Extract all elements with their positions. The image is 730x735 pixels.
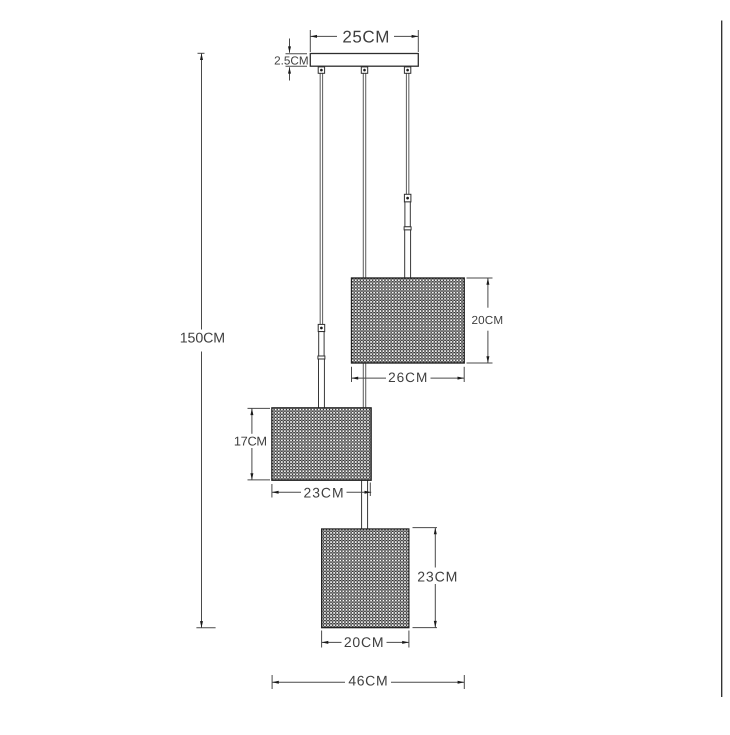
svg-text:20CM: 20CM — [472, 314, 504, 327]
svg-text:23CM: 23CM — [417, 568, 458, 584]
svg-text:20CM: 20CM — [344, 634, 384, 650]
svg-text:26CM: 26CM — [388, 370, 428, 385]
svg-text:46CM: 46CM — [348, 673, 388, 689]
svg-text:2.5CM: 2.5CM — [274, 54, 308, 67]
svg-text:25CM: 25CM — [342, 28, 390, 47]
svg-text:17CM: 17CM — [234, 433, 267, 448]
svg-text:23CM: 23CM — [303, 484, 344, 500]
svg-text:150CM: 150CM — [180, 331, 225, 347]
